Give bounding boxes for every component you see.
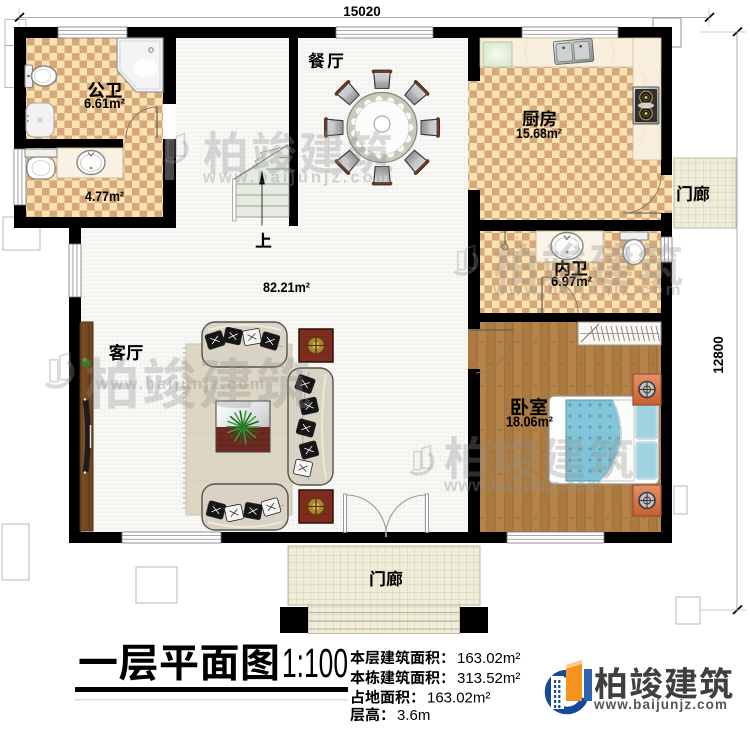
svg-text:15020: 15020 (343, 4, 381, 19)
svg-text:1:100: 1:100 (282, 640, 348, 686)
svg-text:4.77m²: 4.77m² (85, 188, 124, 204)
svg-text:313.52m²: 313.52m² (457, 670, 520, 687)
svg-text:163.02m²: 163.02m² (427, 690, 490, 707)
svg-text:18.06m²: 18.06m² (506, 415, 553, 431)
svg-text:www.baijunjz.com: www.baijunjz.com (492, 281, 683, 299)
svg-text:www.baijunjz.com: www.baijunjz.com (593, 697, 728, 712)
svg-text:www.baijunjz.com: www.baijunjz.com (202, 169, 393, 187)
svg-text:3.6m: 3.6m (397, 707, 430, 724)
svg-text:www.baijunjz.com: www.baijunjz.com (443, 475, 603, 495)
svg-text:12800: 12800 (711, 336, 726, 374)
svg-text:82.21m²: 82.21m² (263, 279, 310, 295)
svg-text:163.02m²: 163.02m² (457, 650, 520, 667)
svg-text:6.61m²: 6.61m² (84, 95, 125, 111)
svg-text:15.68m²: 15.68m² (516, 125, 562, 141)
svg-text:www.baijunjz.com: www.baijunjz.com (95, 376, 266, 393)
